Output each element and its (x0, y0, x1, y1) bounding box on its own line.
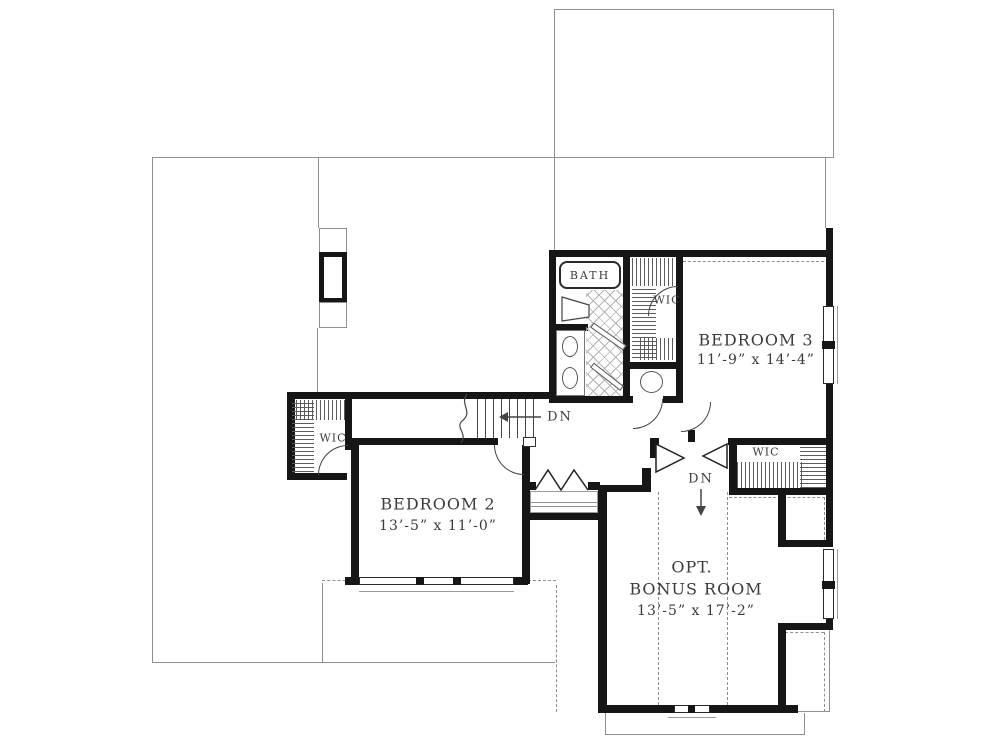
attic-dashed-line (729, 497, 825, 498)
bath-label: BATH (570, 269, 610, 282)
stair-tread (485, 399, 486, 438)
stair-newel-post (523, 437, 536, 447)
bonus-room-dimensions: 13’-5” x 17’-2” (637, 603, 755, 619)
window (359, 577, 514, 585)
roof-outline-line (825, 157, 826, 228)
attic-dashed-line (824, 497, 825, 540)
chimney-cap-outline (319, 228, 347, 254)
roof-outline-line (322, 583, 323, 663)
bonus-room-name-line2: BONUS ROOM (629, 580, 762, 599)
wall-segment (549, 250, 833, 257)
wall-segment (826, 382, 833, 547)
wall-segment (287, 392, 557, 399)
roof-outline-line (798, 711, 830, 712)
wall-segment (598, 705, 674, 713)
wall-segment (549, 396, 633, 403)
double-door-right-panel (703, 444, 727, 468)
attic-dashed-line (785, 632, 824, 633)
floor-plan: BATH WIC WIC WIC BEDROOM 3 11’-9” x 14’-… (0, 0, 1000, 750)
toilet (640, 371, 663, 393)
wic-bonus-label: WIC (752, 446, 779, 459)
roof-outline-line (605, 734, 805, 735)
stair-tread (501, 399, 502, 438)
attic-dashed-line (658, 492, 659, 705)
roof-outline-line (554, 9, 555, 251)
bonus-room-name-line1: OPT. (671, 558, 712, 577)
wall-segment (826, 250, 833, 308)
window-sill (359, 591, 514, 592)
clothes-rod-hatch (632, 258, 676, 286)
door-arc (318, 445, 348, 475)
roof-outline-line (605, 713, 606, 735)
shower-head-icon (562, 297, 589, 321)
wall-segment (351, 438, 359, 584)
wall-segment (778, 540, 833, 547)
stair-tread (525, 399, 526, 438)
wall-segment (688, 430, 695, 442)
door-arc (633, 399, 663, 429)
wall-segment (778, 623, 833, 630)
closet-shelf-line (531, 502, 597, 503)
door-arc (494, 445, 524, 475)
clothes-rod-hatch (640, 338, 676, 360)
stair-tread (533, 399, 534, 438)
chimney-cap-outline (319, 302, 347, 328)
window-sill (668, 717, 716, 718)
wall-segment (345, 577, 359, 585)
double-door-left-panel (656, 444, 684, 472)
roof-outline-line (318, 157, 319, 228)
roof-outline-line (152, 662, 555, 663)
roof-outline-line (152, 157, 834, 158)
bedroom2-name: BEDROOM 2 (380, 495, 495, 514)
wall-segment (642, 468, 651, 492)
roof-outline-line (804, 713, 805, 735)
attic-dashed-line (556, 585, 557, 712)
bedroom3-name: BEDROOM 3 (698, 331, 813, 350)
roof-outline-line (152, 157, 153, 663)
wall-segment (778, 627, 786, 713)
wall-segment (778, 490, 786, 547)
wall-segment (623, 362, 681, 369)
wall-segment (623, 256, 630, 403)
clothes-rod-hatch (800, 444, 826, 488)
bedroom3-dimensions: 11’-9” x 14’-4” (697, 352, 815, 368)
roof-outline-line (554, 9, 834, 10)
bonus-down-arrowhead (696, 506, 706, 516)
attic-dashed-line (683, 261, 824, 262)
chimney (319, 252, 347, 303)
roof-outline-line (829, 630, 830, 712)
bonus-down-label: DN (688, 472, 714, 487)
bedroom2-dimensions: 13’-5” x 11’-0” (379, 518, 497, 534)
window-mullion (822, 581, 835, 589)
stair-break-line (460, 394, 467, 443)
sink-basin (562, 367, 578, 389)
stairs-down-label: DN (547, 410, 573, 425)
clothes-rod-hatch (292, 402, 314, 472)
wall-segment (729, 442, 737, 491)
bifold-door-symbol (535, 470, 588, 490)
bath-label-box: BATH (559, 261, 621, 289)
roof-outline-line (833, 9, 834, 158)
wic-bedroom3-label: WIC (653, 294, 680, 307)
wall-segment (352, 438, 498, 445)
closet-shelf-line (531, 506, 597, 507)
attic-dashed-line (824, 632, 825, 712)
plan-symbols-svg (0, 0, 1000, 750)
window-mullion (822, 341, 835, 349)
window-mullion (416, 577, 424, 585)
door-arc (681, 402, 711, 432)
window-sill (837, 549, 838, 619)
clothes-rod-hatch (737, 462, 803, 488)
window-sill (837, 306, 838, 384)
wall-segment (598, 485, 607, 713)
wall-segment (826, 228, 833, 252)
wic-bedroom2-label: WIC (319, 432, 346, 445)
window-mullion (453, 577, 461, 585)
wall-segment (522, 482, 536, 490)
roof-outline-line (317, 328, 318, 393)
stair-tread (493, 399, 494, 438)
stair-tread (517, 399, 518, 438)
stair-tread (477, 399, 478, 438)
window-mullion (688, 705, 695, 713)
wall-segment (650, 438, 659, 458)
wall-segment (676, 256, 683, 400)
sink-basin (562, 336, 578, 357)
wall-segment (522, 512, 607, 520)
stair-tread (509, 399, 510, 438)
wall-segment (663, 396, 683, 403)
attic-dashed-line (727, 492, 728, 705)
